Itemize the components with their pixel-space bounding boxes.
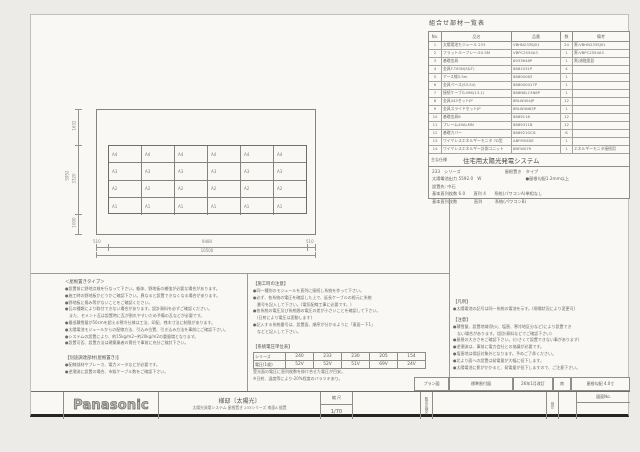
panel-cell: A1 — [109, 198, 142, 215]
drawing-sheet: 組合せ部材一覧表 No. 品名 品番 数 備考 1 太陽電池モジュール 233 … — [30, 14, 629, 417]
parts-row-note: 黒:VBPC2554A3 — [573, 50, 629, 58]
panel-cell: A4 — [274, 146, 306, 162]
parts-row-qty: 1 — [561, 74, 573, 82]
parts-row-note: 黒:VBHN233SJ01 — [573, 42, 629, 50]
spec-line-b: 基本直列枚数 直列 系統(パワコンB) — [432, 198, 526, 205]
voltage-cell: 230 — [341, 353, 369, 360]
parts-row-no: 1 — [429, 42, 442, 50]
parts-row-qty: 1 — [561, 82, 573, 90]
parts-row-no: 7 — [429, 90, 442, 98]
parts-row-note — [573, 130, 629, 138]
voltage-cell: 52V — [285, 361, 313, 368]
voltage-cell: 154 — [397, 353, 425, 360]
panel-cell: A3 — [142, 163, 175, 179]
parts-row-code: 8889311B — [512, 122, 561, 130]
parts-row-code: 888000417P — [512, 82, 561, 90]
voltage-cell: 24V — [397, 361, 425, 368]
parts-row-no: 9 — [429, 106, 442, 114]
docrow-face: 南 — [553, 377, 571, 391]
spec-dest: 設置先: 中石 — [432, 183, 456, 190]
parts-row-qty: 1 — [561, 146, 573, 154]
stamp-value-cell — [559, 392, 577, 419]
dealer-value-cell — [433, 392, 547, 419]
dealer-label: 販売店様名 — [421, 393, 432, 418]
parts-col-code: 品番 — [512, 32, 561, 42]
spec-output: 太陽電池出力 5592.0 W — [432, 175, 481, 182]
note-line: ●北より面への設置は発電量が大幅に低下します。 — [453, 358, 629, 365]
panel-cell: A2 — [175, 181, 208, 197]
parts-row-name: 金具ベース(S3,S4) — [442, 82, 512, 90]
spec-line-a: 基本直列枚数 6.0 直列 4 系統(パワコンA)単相なし — [432, 190, 542, 197]
note-line: ●太陽電池に影がかかると、発電量が低下しますので、ご注意下さい。 — [453, 365, 629, 372]
note-line: ない場合があります。(設計資料などでご確認下さい) — [453, 331, 629, 338]
parts-row-no: 11 — [429, 122, 442, 130]
docrow-plan: プラン図 — [414, 377, 449, 391]
note-line: 受光面の電圧に直列枚数を掛け合せた電圧が目安。 — [253, 369, 448, 376]
parts-row-no: 5 — [429, 74, 442, 82]
figno-label: 図面No. — [577, 392, 630, 403]
parts-row-code: 8889116 — [512, 114, 561, 122]
panel-cell: A2 — [274, 181, 306, 197]
note-line: ●システムの設置により、約15kg/m2~約20kg/m2の重量増となります。 — [65, 334, 247, 341]
note-line: ●各系統の電圧及び系統間の電圧の差が小さいことを確認して下さい。 — [253, 308, 448, 315]
parts-row-qty: 1 — [561, 106, 573, 114]
notes-mid-block: 【施工時の注意】 ●同一種別のモジュールを直列に接続し系統を作って下さい。 ●必… — [253, 281, 448, 336]
parts-row-note — [573, 138, 629, 146]
panel-cell: A2 — [208, 181, 241, 197]
parts-row-code: VBHN233SJ01 — [512, 42, 561, 50]
panel-cell: A4 — [241, 146, 274, 162]
stamp-label: 検印 — [547, 393, 558, 418]
parts-row-qty: 8 — [561, 130, 573, 138]
voltage-cell: 205 — [369, 353, 397, 360]
voltage-cell: 240 — [285, 353, 313, 360]
panel-cell: A2 — [109, 181, 142, 197]
parts-table: No. 品名 品番 数 備考 1 太陽電池モジュール 233 VBHN233SJ… — [429, 32, 629, 154]
parts-row-no: 13 — [429, 138, 442, 146]
voltage-cell: 69V — [369, 361, 397, 368]
panel-cell: A3 — [241, 163, 274, 179]
dim-h-left: 510 — [93, 239, 101, 244]
parts-row-name: 太陽電池モジュール 233 — [442, 42, 512, 50]
empty-cell-1 — [353, 392, 421, 419]
parts-row-name: フレーム49ALMN — [442, 122, 512, 130]
dim-tick — [96, 252, 97, 258]
parts-col-no: No. — [429, 32, 442, 42]
notes-left2-block: 【別途調達部材(屋根置き)】 ●配線部材やブレーカ、電力メータなどが必要です。 … — [65, 355, 247, 376]
note-line: ●太陽電池モジュールからの配線方法、引込み位置、引き込み方法を事前にご確認下さい… — [65, 327, 247, 334]
parts-row-code: 88800063 — [512, 74, 561, 82]
panel-cell: A3 — [274, 163, 306, 179]
dealer-label-cell: 販売店様名 — [421, 392, 433, 419]
dim-v-bottom: 1000 — [72, 217, 77, 227]
parts-row-no: 8 — [429, 98, 442, 106]
note-line: ●記入する系統番号は、設置面、順序が分かるように「東面一下1」 — [253, 322, 448, 329]
parts-spec-box: No. 品名 品番 数 備考 1 太陽電池モジュール 233 VBHN233SJ… — [428, 31, 630, 199]
panel-cell: A4 — [142, 146, 175, 162]
docrow-layout: 標準割付図 — [449, 377, 513, 391]
parts-row-note — [573, 82, 629, 90]
note-line: ●太陽電池の記号は同一系統の電池を示す。(現場状況により変更可) — [453, 306, 629, 313]
notes-left2-title: 【別途調達部材(屋根置き)】 — [65, 355, 247, 362]
parts-row-qty: 1 — [561, 90, 573, 98]
parts-row-name: ワイヤレスエネルギー計測ユニット — [442, 146, 512, 154]
note-line: ●逆潮流は、事前に電力会社との協議が必要です。 — [453, 344, 629, 351]
note-line: また、セメント瓦は設置時に瓦が割れやすいため予備の瓦などが必要です。 — [65, 313, 247, 320]
parts-row-no: 2 — [429, 50, 442, 58]
dim-tick — [75, 145, 82, 146]
parts-row-note — [573, 66, 629, 74]
parts-row-note — [573, 122, 629, 130]
voltage-series-row: シリーズ 240 233 230 205 154 — [254, 353, 425, 361]
parts-row-qty: 12 — [561, 122, 573, 130]
scale-cell: 縮 尺 1/70 — [321, 392, 353, 419]
parts-row-name: ワイヤレスエネルギーモニタ 7D型 — [442, 138, 512, 146]
dim-tick — [75, 214, 82, 215]
dim-tick — [75, 234, 82, 235]
parts-row-name: 接続ケーブル496(13-1) — [442, 90, 512, 98]
panel-row: A2 A2 A2 A2 A2 A2 — [109, 181, 306, 198]
note-line: ●塩害地は保証対象外となります。予めご了承ください。 — [453, 351, 629, 358]
parts-row-code: VBPC2554A3 — [512, 50, 561, 58]
note-line: などと記入して下さい。 — [253, 329, 448, 336]
logo-cell: Panasonic — [63, 392, 159, 419]
parts-row-qty: 12 — [561, 98, 573, 106]
dim-v-mid: 3320 — [72, 173, 77, 183]
parts-row-qty: 1 — [561, 58, 573, 66]
note-line: ●屋根の大きさをご確認下さい。(小さくて設置できない事があります) — [453, 337, 629, 344]
panel-cell: A3 — [175, 163, 208, 179]
notes-left-block: ＜屋根置きタイプ＞ ●設置前に野地点検を行なって下さい。躯体、野地板の補強が必要… — [65, 279, 247, 347]
panel-cell: A1 — [274, 198, 306, 215]
caution-title: 【注意】 — [453, 317, 629, 324]
notes-mid-title: 【施工時の注意】 — [253, 281, 448, 288]
panel-cell: A4 — [109, 146, 142, 162]
parts-row-qty: 1 — [561, 50, 573, 58]
parts-row-note — [573, 74, 629, 82]
parts-row-no: 4 — [429, 66, 442, 74]
parts-row-name: 基礎金具B — [442, 114, 512, 122]
panel-cell: A1 — [142, 198, 175, 215]
panasonic-logo: Panasonic — [64, 392, 158, 419]
system-name: 住宅用太陽光発電システム — [463, 156, 540, 165]
voltage-cell: 52V — [313, 361, 341, 368]
parts-row-name: 金具スライドセットJP — [442, 106, 512, 114]
note-line: ●配線部材やブレーカ、電力メータなどが必要です。 — [65, 362, 247, 369]
voltage-volts-label: 電圧(1枚) — [254, 361, 285, 368]
panel-cell: A2 — [241, 181, 274, 197]
parts-col-note: 備考 — [573, 32, 629, 42]
docrow-pitch: 屋根勾配 4.0寸 — [571, 377, 630, 391]
parts-row-name: フラットルーフレール5.5M — [442, 50, 512, 58]
dim-tick — [315, 244, 316, 251]
parts-row-no: 14 — [429, 146, 442, 154]
dim-h-center: 9480 — [192, 239, 222, 244]
note-line: (日射により電圧は変動します) — [253, 315, 448, 322]
scale-value: 1/70 — [321, 405, 352, 419]
spec-type: 屋根置き タイプ — [505, 168, 539, 175]
drawing-title: 様邸〔太陽光〕 — [159, 396, 320, 405]
parts-row-name: 基礎カバー — [442, 130, 512, 138]
parts-row-note: 黒/溶融亜鉛 — [573, 58, 629, 66]
voltage-series-label: シリーズ — [254, 353, 285, 360]
parts-row-name: 金具443セットJP — [442, 98, 512, 106]
note-line: ●積雪量、設置地域(防火、塩害、寒冷地区分など)により設置でき — [453, 324, 629, 331]
voltage-table: シリーズ 240 233 230 205 154 電圧(1枚) 52V 52V … — [253, 352, 426, 369]
panel-cell: A3 — [208, 163, 241, 179]
spec-label: 主な仕様 — [429, 157, 463, 163]
parts-row-qty: 12 — [561, 114, 573, 122]
parts-col-name: 品名 — [442, 32, 512, 42]
dim-tick — [108, 244, 109, 251]
parts-row-code: ABFM05DE — [512, 138, 561, 146]
divider-horizontal — [31, 273, 449, 274]
dim-line-total — [96, 255, 316, 256]
drawing-subtitle: 太陽光発電システム 屋根置き 233シリーズ 南面A 据置 — [159, 405, 320, 411]
scale-label: 縮 尺 — [321, 392, 352, 405]
scanned-drawing-sheet: { "palette":{"paper":"#f9f8f5","line":"#… — [0, 0, 640, 452]
drawing-title-cell: 様邸〔太陽光〕 太陽光発電システム 屋根置き 233シリーズ 南面A 据置 — [159, 392, 321, 419]
parts-row-note — [573, 106, 629, 114]
parts-row-code: 8RLW404JP — [512, 98, 561, 106]
parts-row-note — [573, 114, 629, 122]
panel-cell: A1 — [208, 198, 241, 215]
parts-row-no: 6 — [429, 82, 442, 90]
parts-col-qty: 数 — [561, 32, 573, 42]
note-line: 番号を記入して下さい。(電気配線工事に必要です。) — [253, 302, 448, 309]
spec-output-note: ●屋根勾配1.2mm以上 — [525, 175, 569, 182]
panel-row: A3 A3 A3 A3 A3 A3 — [109, 163, 306, 180]
spec-series: 233 シリーズ — [432, 168, 461, 175]
parts-row-code: 8933648P — [512, 58, 561, 66]
title-block: Panasonic 様邸〔太陽光〕 太陽光発電システム 屋根置き 233シリーズ… — [31, 391, 630, 418]
parts-row-note — [573, 90, 629, 98]
notes-right-block: 【凡例】 ●太陽電池の記号は同一系統の電池を示す。(現場状況により変更可) 【注… — [453, 299, 629, 371]
note-line: ●同一種別のモジュールを直列に接続し系統を作って下さい。 — [253, 288, 448, 295]
dim-tick — [315, 252, 316, 258]
parts-row-qty: 24 — [561, 42, 573, 50]
voltage-cell: 233 — [313, 353, 341, 360]
note-line: ●設置前に野地点検を行なって下さい。躯体、野地板の補強が必要な場合があります。 — [65, 286, 247, 293]
voltage-volts-row: 電圧(1枚) 52V 52V 51V 69V 24V — [254, 361, 425, 368]
panel-row: A4 A4 A4 A4 A4 A4 — [109, 146, 306, 163]
parts-row-name: 基礎金具 — [442, 58, 512, 66]
parts-row-code: 888N8L13N8P — [512, 90, 561, 98]
note-line: ●設置可否、設置方法は建築業者の責任で事前に充分ご検討下さい。 — [65, 340, 247, 347]
divider-vertical-1 — [247, 273, 248, 391]
spec-header: 主な仕様 住宅用太陽光発電システム — [429, 154, 629, 167]
docrow-revision: 26年1月改訂 — [513, 377, 553, 391]
note-line: ●逆潮流に設置の場合、市販ケーブル数をご確認下さい。 — [65, 369, 247, 376]
figno-cell: 図面No. — [577, 392, 630, 419]
legend-title: 【凡例】 — [453, 299, 629, 306]
parts-row-no: 12 — [429, 130, 442, 138]
voltage-cell: 51V — [341, 361, 369, 368]
dim-line-vertical — [78, 109, 79, 235]
parts-row-code: 8881031P — [512, 66, 561, 74]
parts-row-name: 金具F-T63N(S&T) — [442, 66, 512, 74]
panel-cell: A4 — [208, 146, 241, 162]
parts-row-name: アース線3.5m — [442, 74, 512, 82]
spec-body: 233 シリーズ 屋根置き タイプ 太陽電池出力 5592.0 W ●屋根勾配1… — [429, 167, 629, 206]
note-line: ●施工時の野地板かどうかご確認下さい。異なると設置できなくなる場合があります。 — [65, 293, 247, 300]
panel-cell: A3 — [109, 163, 142, 179]
parts-row-no: 10 — [429, 114, 442, 122]
panel-cell: A1 — [175, 198, 208, 215]
dim-v-top: 1632 — [72, 120, 77, 130]
panel-cell: A2 — [142, 181, 175, 197]
note-line: ●野地板に傷み等がないことをご確認ください。 — [65, 300, 247, 307]
note-line: ●瓦の種類により取付できない場合があります。設計資料を必ずご確認ください。 — [65, 306, 247, 313]
dim-h-right: 510 — [306, 239, 314, 244]
parts-row-qty: 4 — [561, 66, 573, 74]
parts-table-title: 組合せ部材一覧表 — [429, 18, 485, 27]
divider-vertical-2 — [449, 199, 450, 391]
parts-row-qty: 1 — [561, 138, 573, 146]
panel-cell: A1 — [241, 198, 274, 215]
dim-tick — [96, 244, 97, 251]
parts-row-no: 3 — [429, 58, 442, 66]
note-line: ●必ず、各系統の電圧を確認した上で、延長ケーブルの根元に系統 — [253, 295, 448, 302]
notes-left-title: ＜屋根置きタイプ＞ — [65, 279, 247, 286]
dim-h-total: 10500 — [192, 248, 222, 253]
parts-row-code: 8RLW4N63P — [512, 106, 561, 114]
parts-row-code: 888921GC8 — [512, 130, 561, 138]
dim-tick — [307, 244, 308, 251]
parts-row-code: 8BFW079 — [512, 146, 561, 154]
panel-grid: A4 A4 A4 A4 A4 A4 A3 A3 A3 A3 A3 A3 A2 A… — [108, 145, 307, 214]
parts-row-note: エネルギーモニタ接続用 — [573, 146, 629, 154]
note-line: ●最低積雪量が50cmを超える寒冷仕様は工法、印配、桟木寸法に制限があります。 — [65, 320, 247, 327]
dim-tick — [75, 109, 82, 110]
voltage-table-title: 【系統電圧単位表】 — [253, 344, 293, 351]
dim-v-total: 5952 — [65, 170, 70, 180]
parts-row-note — [573, 98, 629, 106]
panel-row: A1 A1 A1 A1 A1 A1 — [109, 198, 306, 215]
stamp-label-cell: 検印 — [547, 392, 559, 419]
panel-cell: A4 — [175, 146, 208, 162]
